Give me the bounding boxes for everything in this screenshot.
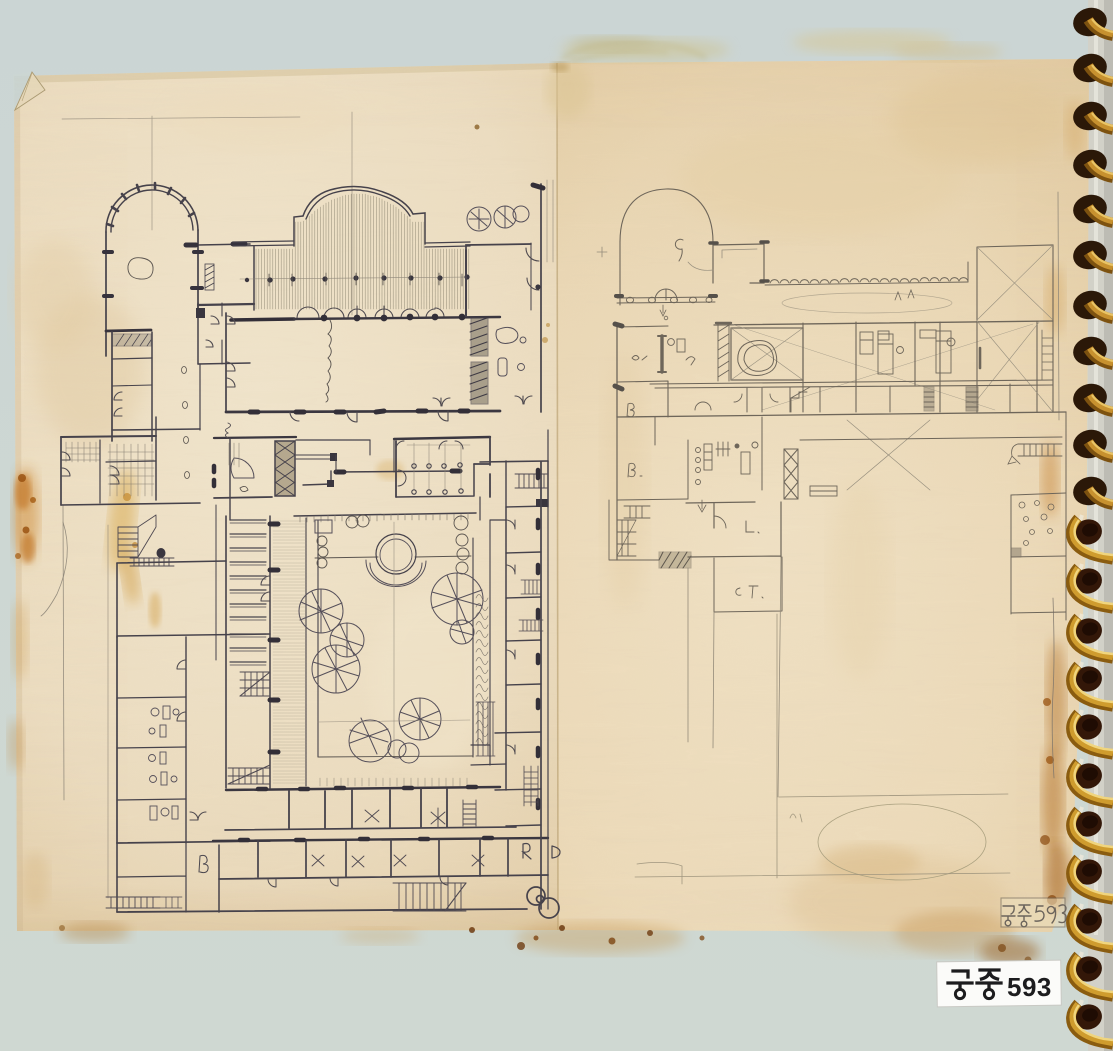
svg-text:593: 593 bbox=[1007, 972, 1052, 1002]
